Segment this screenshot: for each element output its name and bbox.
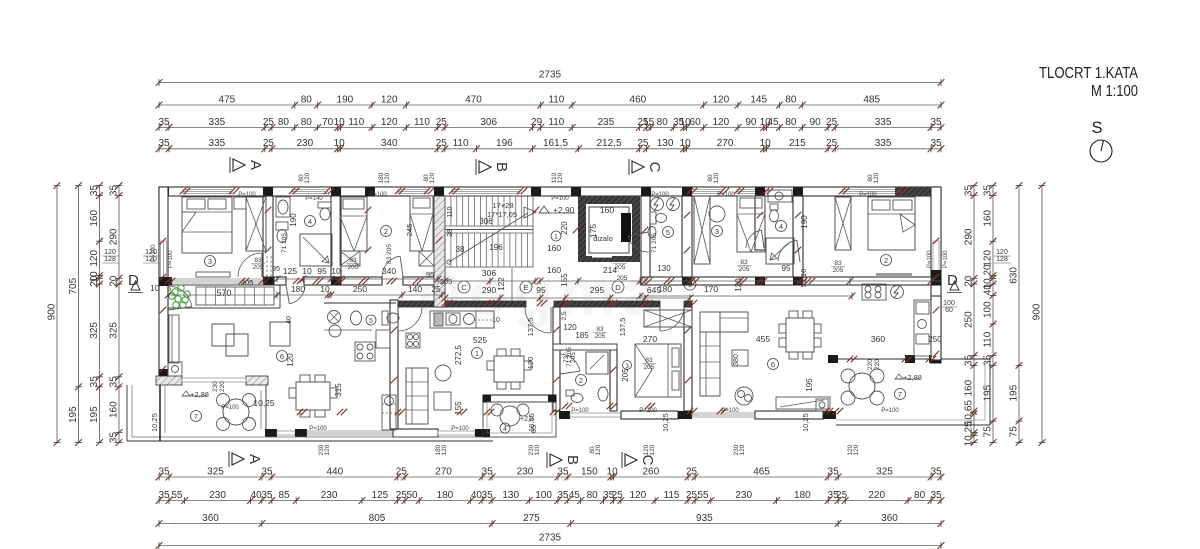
svg-text:10,65: 10,65 <box>527 413 536 432</box>
svg-text:80: 80 <box>657 117 669 128</box>
svg-text:155: 155 <box>560 273 569 287</box>
svg-text:83: 83 <box>616 257 624 264</box>
svg-text:205: 205 <box>440 277 453 286</box>
svg-text:230: 230 <box>209 490 226 501</box>
svg-text:120: 120 <box>712 117 729 128</box>
svg-text:83: 83 <box>740 259 748 266</box>
svg-text:335: 335 <box>209 117 226 128</box>
svg-text:110: 110 <box>453 138 469 149</box>
svg-text:260: 260 <box>642 467 659 478</box>
svg-text:45: 45 <box>569 490 581 501</box>
svg-text:230: 230 <box>321 490 338 501</box>
svg-text:306: 306 <box>480 117 497 128</box>
svg-text:160: 160 <box>547 265 561 275</box>
svg-text:10: 10 <box>320 284 330 294</box>
svg-text:3: 3 <box>208 257 212 266</box>
svg-text:P=100: P=100 <box>221 405 239 411</box>
svg-text:120: 120 <box>630 490 647 501</box>
svg-text:D: D <box>128 272 139 289</box>
svg-text:10: 10 <box>334 138 346 149</box>
svg-text:525: 525 <box>473 335 487 345</box>
svg-text:P=140: P=140 <box>305 196 323 202</box>
svg-text:10,25: 10,25 <box>253 398 275 408</box>
svg-text:D: D <box>947 272 958 289</box>
svg-text:35: 35 <box>930 467 942 478</box>
svg-text:805: 805 <box>369 513 386 524</box>
svg-text:80: 80 <box>301 95 313 106</box>
svg-text:83: 83 <box>645 357 653 364</box>
svg-text:120: 120 <box>286 353 295 367</box>
svg-text:10: 10 <box>680 138 692 149</box>
svg-text:455: 455 <box>756 334 770 344</box>
svg-text:95: 95 <box>782 264 791 273</box>
svg-text:290: 290 <box>964 228 975 245</box>
svg-text:110: 110 <box>414 117 430 128</box>
svg-text:5: 5 <box>666 228 670 237</box>
svg-text:160: 160 <box>964 379 975 396</box>
svg-text:+2,88: +2,88 <box>190 390 209 399</box>
svg-text:570: 570 <box>216 288 231 298</box>
svg-text:440: 440 <box>326 467 343 478</box>
svg-text:340: 340 <box>381 138 398 149</box>
svg-text:10: 10 <box>760 138 772 149</box>
svg-text:35: 35 <box>158 117 170 128</box>
svg-text:35: 35 <box>261 490 273 501</box>
svg-text:38: 38 <box>456 245 465 254</box>
svg-text:122: 122 <box>497 277 506 291</box>
svg-text:2735: 2735 <box>539 70 562 81</box>
svg-text:6: 6 <box>280 352 284 361</box>
svg-text:80: 80 <box>785 117 797 128</box>
svg-text:90: 90 <box>745 117 757 128</box>
svg-text:380: 380 <box>733 354 740 366</box>
svg-text:4: 4 <box>779 222 783 231</box>
svg-text:1: 1 <box>475 349 479 358</box>
svg-text:235: 235 <box>597 117 614 128</box>
svg-text:120: 120 <box>381 117 398 128</box>
svg-text:M 1:100: M 1:100 <box>1091 83 1138 100</box>
svg-text:290: 290 <box>109 228 120 245</box>
svg-text:155: 155 <box>454 401 463 415</box>
svg-text:35: 35 <box>158 490 170 501</box>
svg-text:3: 3 <box>715 227 719 236</box>
svg-text:215: 215 <box>789 138 806 149</box>
svg-text:P=100: P=100 <box>238 192 256 198</box>
svg-text:120: 120 <box>324 444 331 455</box>
svg-text:190: 190 <box>289 213 298 227</box>
svg-text:83: 83 <box>349 257 357 264</box>
svg-text:125: 125 <box>372 490 389 501</box>
svg-text:325: 325 <box>876 467 893 478</box>
svg-text:120: 120 <box>526 357 535 370</box>
svg-text:80: 80 <box>278 117 290 128</box>
svg-text:71 205: 71 205 <box>566 347 573 367</box>
svg-text:295: 295 <box>590 285 604 295</box>
svg-text:100: 100 <box>983 301 994 318</box>
svg-text:196: 196 <box>496 138 513 149</box>
svg-text:83: 83 <box>254 257 262 264</box>
svg-text:P=100: P=100 <box>168 250 174 268</box>
svg-text:2735: 2735 <box>539 533 562 544</box>
svg-text:272,5: 272,5 <box>454 344 463 365</box>
svg-text:6: 6 <box>771 360 775 369</box>
svg-text:2: 2 <box>384 227 388 236</box>
svg-text:196: 196 <box>489 243 503 252</box>
svg-text:205: 205 <box>644 364 655 371</box>
svg-text:10: 10 <box>302 266 312 276</box>
svg-text:B: B <box>493 162 510 172</box>
svg-text:dizalo: dizalo <box>593 234 613 243</box>
svg-text:80: 80 <box>301 117 313 128</box>
svg-text:S: S <box>1091 119 1102 137</box>
svg-text:P=100: P=100 <box>151 244 157 262</box>
svg-text:195: 195 <box>805 378 814 392</box>
svg-text:205: 205 <box>833 267 844 274</box>
svg-text:10,65: 10,65 <box>964 400 975 425</box>
svg-text:128: 128 <box>996 256 1008 263</box>
svg-text:230: 230 <box>517 467 534 478</box>
svg-text:205: 205 <box>617 275 628 282</box>
svg-text:+2,90: +2,90 <box>553 205 575 215</box>
svg-text:40: 40 <box>286 316 293 324</box>
svg-text:120: 120 <box>739 444 746 455</box>
svg-text:E: E <box>523 283 528 292</box>
svg-text:120: 120 <box>853 444 860 455</box>
svg-text:40: 40 <box>983 284 994 296</box>
svg-text:120: 120 <box>557 172 564 183</box>
svg-text:35: 35 <box>261 467 273 478</box>
svg-text:110: 110 <box>447 206 454 217</box>
svg-text:290: 290 <box>482 285 496 295</box>
svg-text:10: 10 <box>331 266 341 276</box>
svg-text:2,5: 2,5 <box>561 311 568 320</box>
svg-text:325: 325 <box>207 467 224 478</box>
svg-text:170: 170 <box>704 284 718 294</box>
svg-text:325: 325 <box>89 322 100 339</box>
svg-text:83: 83 <box>596 326 604 333</box>
svg-text:150: 150 <box>581 467 598 478</box>
svg-text:95: 95 <box>536 285 546 295</box>
svg-text:35: 35 <box>109 432 120 444</box>
svg-text:220: 220 <box>560 221 569 235</box>
svg-text:205: 205 <box>253 264 264 271</box>
svg-text:120: 120 <box>381 95 398 106</box>
svg-text:80: 80 <box>587 490 599 501</box>
svg-text:120: 120 <box>595 444 602 455</box>
svg-text:A: A <box>246 454 263 464</box>
svg-text:15: 15 <box>643 117 655 128</box>
svg-text:160: 160 <box>600 205 614 215</box>
svg-text:160: 160 <box>547 243 561 253</box>
svg-text:28: 28 <box>447 229 454 237</box>
svg-text:212,5: 212,5 <box>596 138 621 149</box>
svg-text:60: 60 <box>945 307 953 314</box>
svg-text:10,25: 10,25 <box>661 413 670 432</box>
svg-text:465: 465 <box>753 467 770 478</box>
svg-text:935: 935 <box>696 513 713 524</box>
svg-text:475: 475 <box>219 95 236 106</box>
svg-text:205: 205 <box>621 368 630 382</box>
svg-text:460: 460 <box>630 95 647 106</box>
svg-text:120: 120 <box>873 172 880 183</box>
svg-text:71 205: 71 205 <box>651 233 658 253</box>
svg-text:35: 35 <box>964 354 975 366</box>
svg-text:10: 10 <box>334 117 346 128</box>
svg-text:180: 180 <box>291 284 305 294</box>
svg-text:161,5: 161,5 <box>543 138 568 149</box>
svg-text:35: 35 <box>557 490 569 501</box>
svg-text:35: 35 <box>557 467 569 478</box>
svg-text:B: B <box>564 455 581 465</box>
svg-text:470: 470 <box>465 95 482 106</box>
svg-text:95: 95 <box>272 264 280 273</box>
svg-text:900: 900 <box>47 303 58 320</box>
svg-text:180: 180 <box>658 284 672 294</box>
svg-text:120: 120 <box>712 95 729 106</box>
svg-text:160: 160 <box>89 210 100 227</box>
svg-text:10: 10 <box>492 317 500 324</box>
svg-text:125: 125 <box>283 266 297 276</box>
svg-text:205: 205 <box>348 264 359 271</box>
svg-text:75: 75 <box>983 426 994 438</box>
svg-text:220: 220 <box>868 490 885 501</box>
svg-text:D: D <box>615 283 621 292</box>
svg-text:35: 35 <box>964 185 975 197</box>
svg-text:120: 120 <box>441 444 448 455</box>
svg-text:35: 35 <box>109 376 120 388</box>
svg-text:185: 185 <box>575 331 589 340</box>
svg-text:P=100: P=100 <box>451 426 469 432</box>
svg-text:35: 35 <box>930 490 942 501</box>
svg-text:35: 35 <box>983 185 994 197</box>
svg-text:130: 130 <box>657 138 674 149</box>
svg-text:220: 220 <box>867 359 874 370</box>
svg-text:A: A <box>247 160 264 170</box>
svg-text:195: 195 <box>983 384 994 401</box>
svg-text:325: 325 <box>109 322 120 339</box>
svg-text:17+28: 17+28 <box>492 201 513 210</box>
svg-text:7: 7 <box>898 390 902 399</box>
svg-text:110: 110 <box>548 117 564 128</box>
svg-text:130: 130 <box>657 264 671 273</box>
svg-text:P=100: P=100 <box>309 426 327 432</box>
svg-text:335: 335 <box>209 138 226 149</box>
svg-text:160: 160 <box>983 210 994 227</box>
svg-text:95: 95 <box>426 270 434 279</box>
svg-text:120: 120 <box>996 249 1008 256</box>
svg-text:335: 335 <box>875 138 892 149</box>
svg-text:10,25: 10,25 <box>801 413 810 432</box>
svg-text:120: 120 <box>384 172 391 183</box>
svg-text:180: 180 <box>794 490 811 501</box>
svg-text:120: 120 <box>983 250 994 267</box>
svg-text:85: 85 <box>279 490 291 501</box>
svg-text:7: 7 <box>194 412 198 421</box>
svg-text:70: 70 <box>322 117 334 128</box>
svg-text:115: 115 <box>664 490 680 501</box>
svg-text:TLOCRT 1.KATA: TLOCRT 1.KATA <box>1039 65 1138 82</box>
svg-text:90: 90 <box>810 117 822 128</box>
svg-text:195: 195 <box>1009 384 1020 401</box>
svg-text:100: 100 <box>535 490 552 501</box>
svg-text:35: 35 <box>158 467 170 478</box>
svg-text:485: 485 <box>863 95 880 106</box>
svg-text:80: 80 <box>914 490 926 501</box>
svg-text:220: 220 <box>219 381 226 392</box>
svg-text:306: 306 <box>479 217 493 226</box>
svg-text:705: 705 <box>68 277 79 294</box>
svg-text:140: 140 <box>408 284 422 294</box>
svg-text:137,5: 137,5 <box>526 318 535 337</box>
svg-text:120: 120 <box>649 444 656 455</box>
svg-text:+2,88: +2,88 <box>903 373 922 382</box>
svg-text:137,5: 137,5 <box>618 318 627 337</box>
svg-text:120: 120 <box>429 172 436 183</box>
svg-text:250: 250 <box>928 335 942 344</box>
svg-text:35: 35 <box>109 185 120 197</box>
svg-text:5: 5 <box>369 318 373 325</box>
svg-text:120: 120 <box>104 249 116 256</box>
svg-text:55: 55 <box>171 490 183 501</box>
svg-text:360: 360 <box>881 513 898 524</box>
svg-text:340: 340 <box>382 266 396 276</box>
svg-text:10: 10 <box>607 467 619 478</box>
svg-text:P=100: P=100 <box>639 408 657 414</box>
svg-text:35: 35 <box>89 185 100 197</box>
svg-text:4: 4 <box>503 426 507 433</box>
svg-text:180: 180 <box>437 490 454 501</box>
svg-text:P=100: P=100 <box>571 408 589 414</box>
svg-text:35: 35 <box>158 138 170 149</box>
svg-text:P=100: P=100 <box>651 192 669 198</box>
svg-text:35: 35 <box>828 467 840 478</box>
svg-text:120: 120 <box>534 444 541 455</box>
svg-text:95: 95 <box>317 266 327 276</box>
svg-text:35: 35 <box>482 490 494 501</box>
svg-text:250: 250 <box>353 284 367 294</box>
svg-text:128: 128 <box>104 256 116 263</box>
svg-text:C: C <box>646 162 663 173</box>
svg-text:270: 270 <box>435 467 452 478</box>
svg-text:P=100: P=100 <box>881 408 899 414</box>
svg-text:120: 120 <box>304 172 311 183</box>
svg-text:P=100: P=100 <box>927 250 933 268</box>
svg-text:190: 190 <box>337 95 354 106</box>
svg-text:630: 630 <box>1009 267 1020 284</box>
svg-text:245: 245 <box>405 224 414 237</box>
svg-text:120: 120 <box>89 250 100 267</box>
svg-text:270: 270 <box>643 334 657 344</box>
svg-text:230: 230 <box>735 490 752 501</box>
svg-text:270: 270 <box>717 138 734 149</box>
svg-text:83: 83 <box>834 260 842 267</box>
svg-text:900: 900 <box>1032 303 1043 320</box>
svg-text:4: 4 <box>308 217 312 226</box>
svg-text:145: 145 <box>750 95 767 106</box>
svg-text:45: 45 <box>767 117 779 128</box>
svg-text:130: 130 <box>502 490 519 501</box>
svg-text:P=100: P=100 <box>943 250 949 268</box>
svg-text:35: 35 <box>930 138 942 149</box>
svg-text:195: 195 <box>89 406 100 423</box>
svg-text:275: 275 <box>523 513 540 524</box>
svg-text:220: 220 <box>874 359 881 370</box>
svg-text:35: 35 <box>983 354 994 366</box>
svg-text:100: 100 <box>943 300 955 307</box>
svg-text:80: 80 <box>785 95 797 106</box>
svg-text:306: 306 <box>482 268 496 278</box>
svg-text:55: 55 <box>697 490 709 501</box>
svg-text:50: 50 <box>406 490 418 501</box>
svg-text:1: 1 <box>554 234 558 241</box>
svg-text:230: 230 <box>296 138 313 149</box>
svg-text:110: 110 <box>983 331 994 347</box>
svg-text:P=100: P=100 <box>551 196 569 202</box>
svg-text:110: 110 <box>548 95 564 106</box>
svg-text:2: 2 <box>579 376 583 385</box>
svg-text:10,25: 10,25 <box>150 413 159 432</box>
svg-text:250: 250 <box>964 311 975 328</box>
svg-text:360: 360 <box>871 334 885 344</box>
svg-text:60: 60 <box>690 117 702 128</box>
svg-text:315: 315 <box>334 383 343 397</box>
svg-text:P=100: P=100 <box>859 192 877 198</box>
svg-text:195: 195 <box>68 406 79 423</box>
svg-text:2: 2 <box>884 256 888 265</box>
svg-text:120: 120 <box>713 172 720 183</box>
svg-text:35: 35 <box>482 467 494 478</box>
svg-text:P=100: P=100 <box>369 192 387 198</box>
svg-text:110: 110 <box>348 117 364 128</box>
svg-text:214: 214 <box>603 265 617 275</box>
svg-text:71 205: 71 205 <box>281 233 288 253</box>
svg-text:160: 160 <box>109 401 120 418</box>
svg-text:360: 360 <box>202 513 219 524</box>
svg-text:205: 205 <box>739 266 750 273</box>
svg-text:C: C <box>461 283 467 292</box>
svg-text:35: 35 <box>89 376 100 388</box>
svg-text:35: 35 <box>930 117 942 128</box>
svg-text:205: 205 <box>595 333 606 340</box>
svg-text:190: 190 <box>800 215 809 229</box>
svg-text:75: 75 <box>1009 426 1020 438</box>
svg-text:335: 335 <box>875 117 892 128</box>
svg-text:230: 230 <box>212 381 219 392</box>
